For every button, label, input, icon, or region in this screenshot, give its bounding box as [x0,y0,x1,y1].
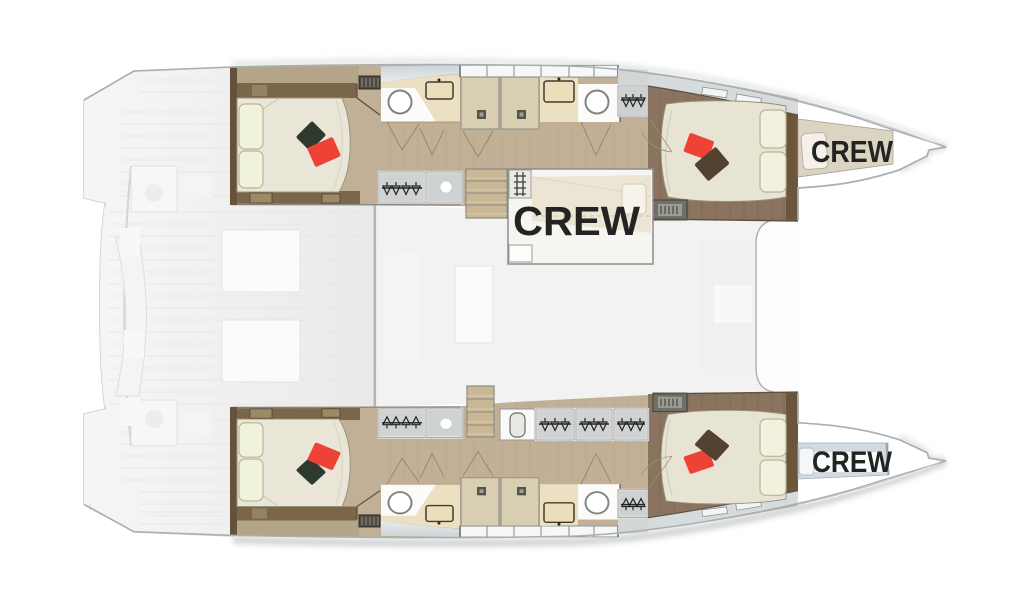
svg-text:CREW: CREW [811,134,894,169]
svg-text:CREW: CREW [513,198,640,244]
svg-text:CREW: CREW [812,446,893,479]
